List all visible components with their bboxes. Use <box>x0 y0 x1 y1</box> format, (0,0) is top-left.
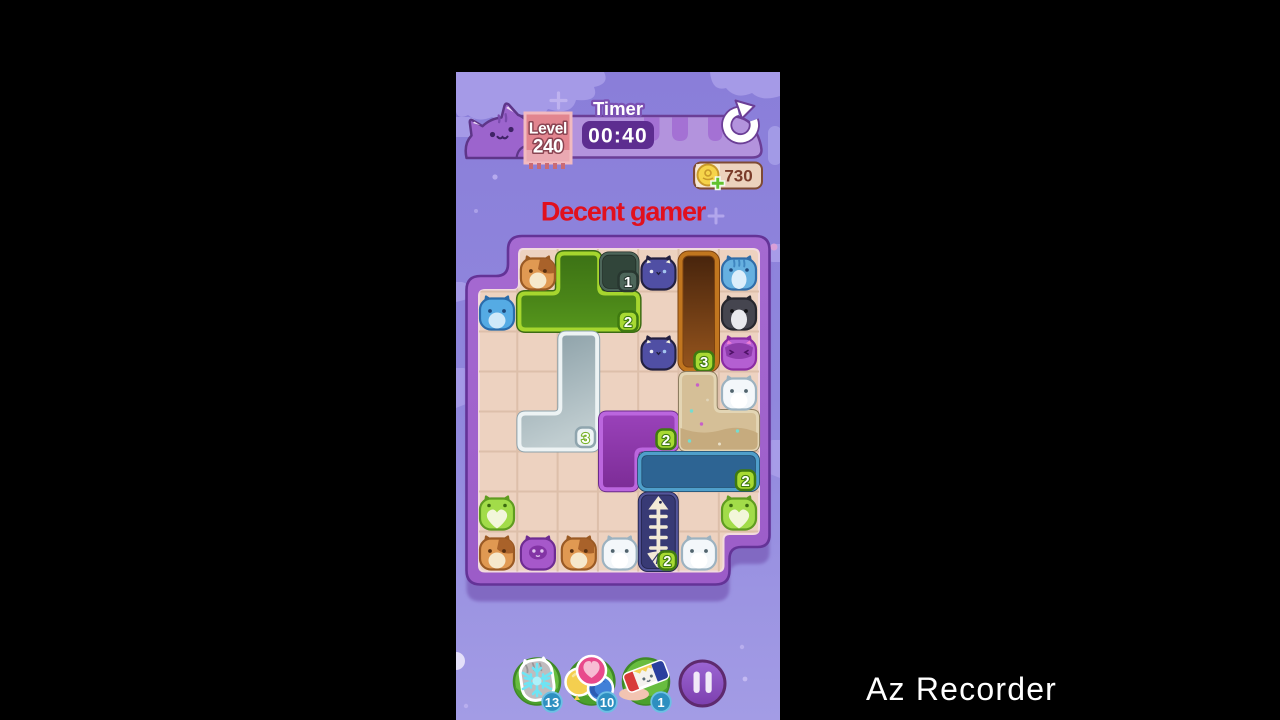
svg-text:2: 2 <box>624 314 632 331</box>
svg-text:3: 3 <box>700 354 708 371</box>
svg-text:730: 730 <box>724 167 752 186</box>
svg-text:2: 2 <box>663 554 671 570</box>
svg-text:1: 1 <box>657 695 664 710</box>
svg-text:Timer: Timer <box>593 98 643 119</box>
svg-text:Decent gamer: Decent gamer <box>541 197 707 227</box>
svg-text:240: 240 <box>533 137 563 158</box>
svg-text:13: 13 <box>545 695 559 710</box>
svg-text:00:40: 00:40 <box>588 125 648 148</box>
svg-text:2: 2 <box>662 432 670 449</box>
svg-text:1: 1 <box>624 274 632 291</box>
svg-text:10: 10 <box>600 695 614 710</box>
svg-text:2: 2 <box>741 473 749 490</box>
svg-text:Level: Level <box>529 121 567 138</box>
svg-text:Az Recorder: Az Recorder <box>866 671 1057 707</box>
svg-text:3: 3 <box>581 430 589 447</box>
